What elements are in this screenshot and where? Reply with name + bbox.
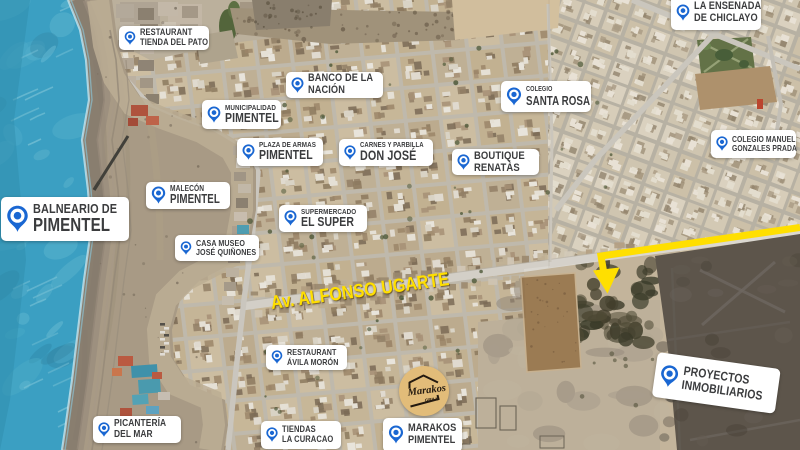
svg-text:Marakos: Marakos xyxy=(406,383,447,399)
